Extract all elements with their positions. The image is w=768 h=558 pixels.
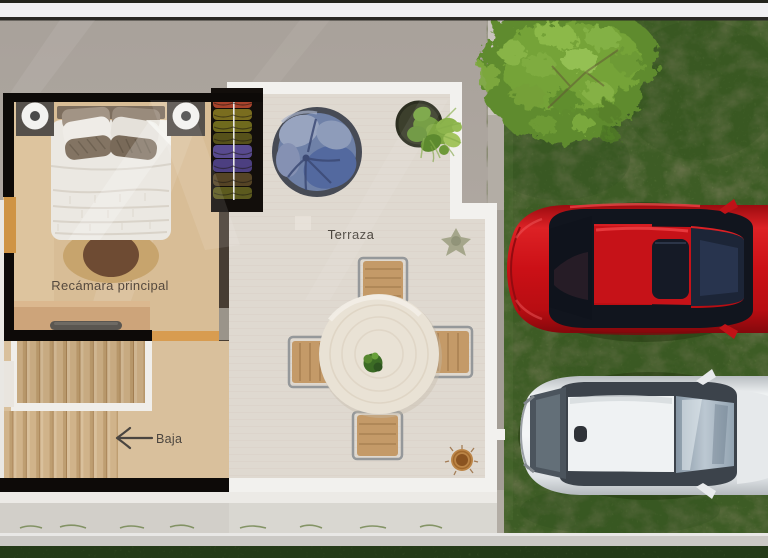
- svg-text:Recámara principal: Recámara principal: [51, 278, 168, 293]
- svg-text:Baja: Baja: [156, 432, 182, 446]
